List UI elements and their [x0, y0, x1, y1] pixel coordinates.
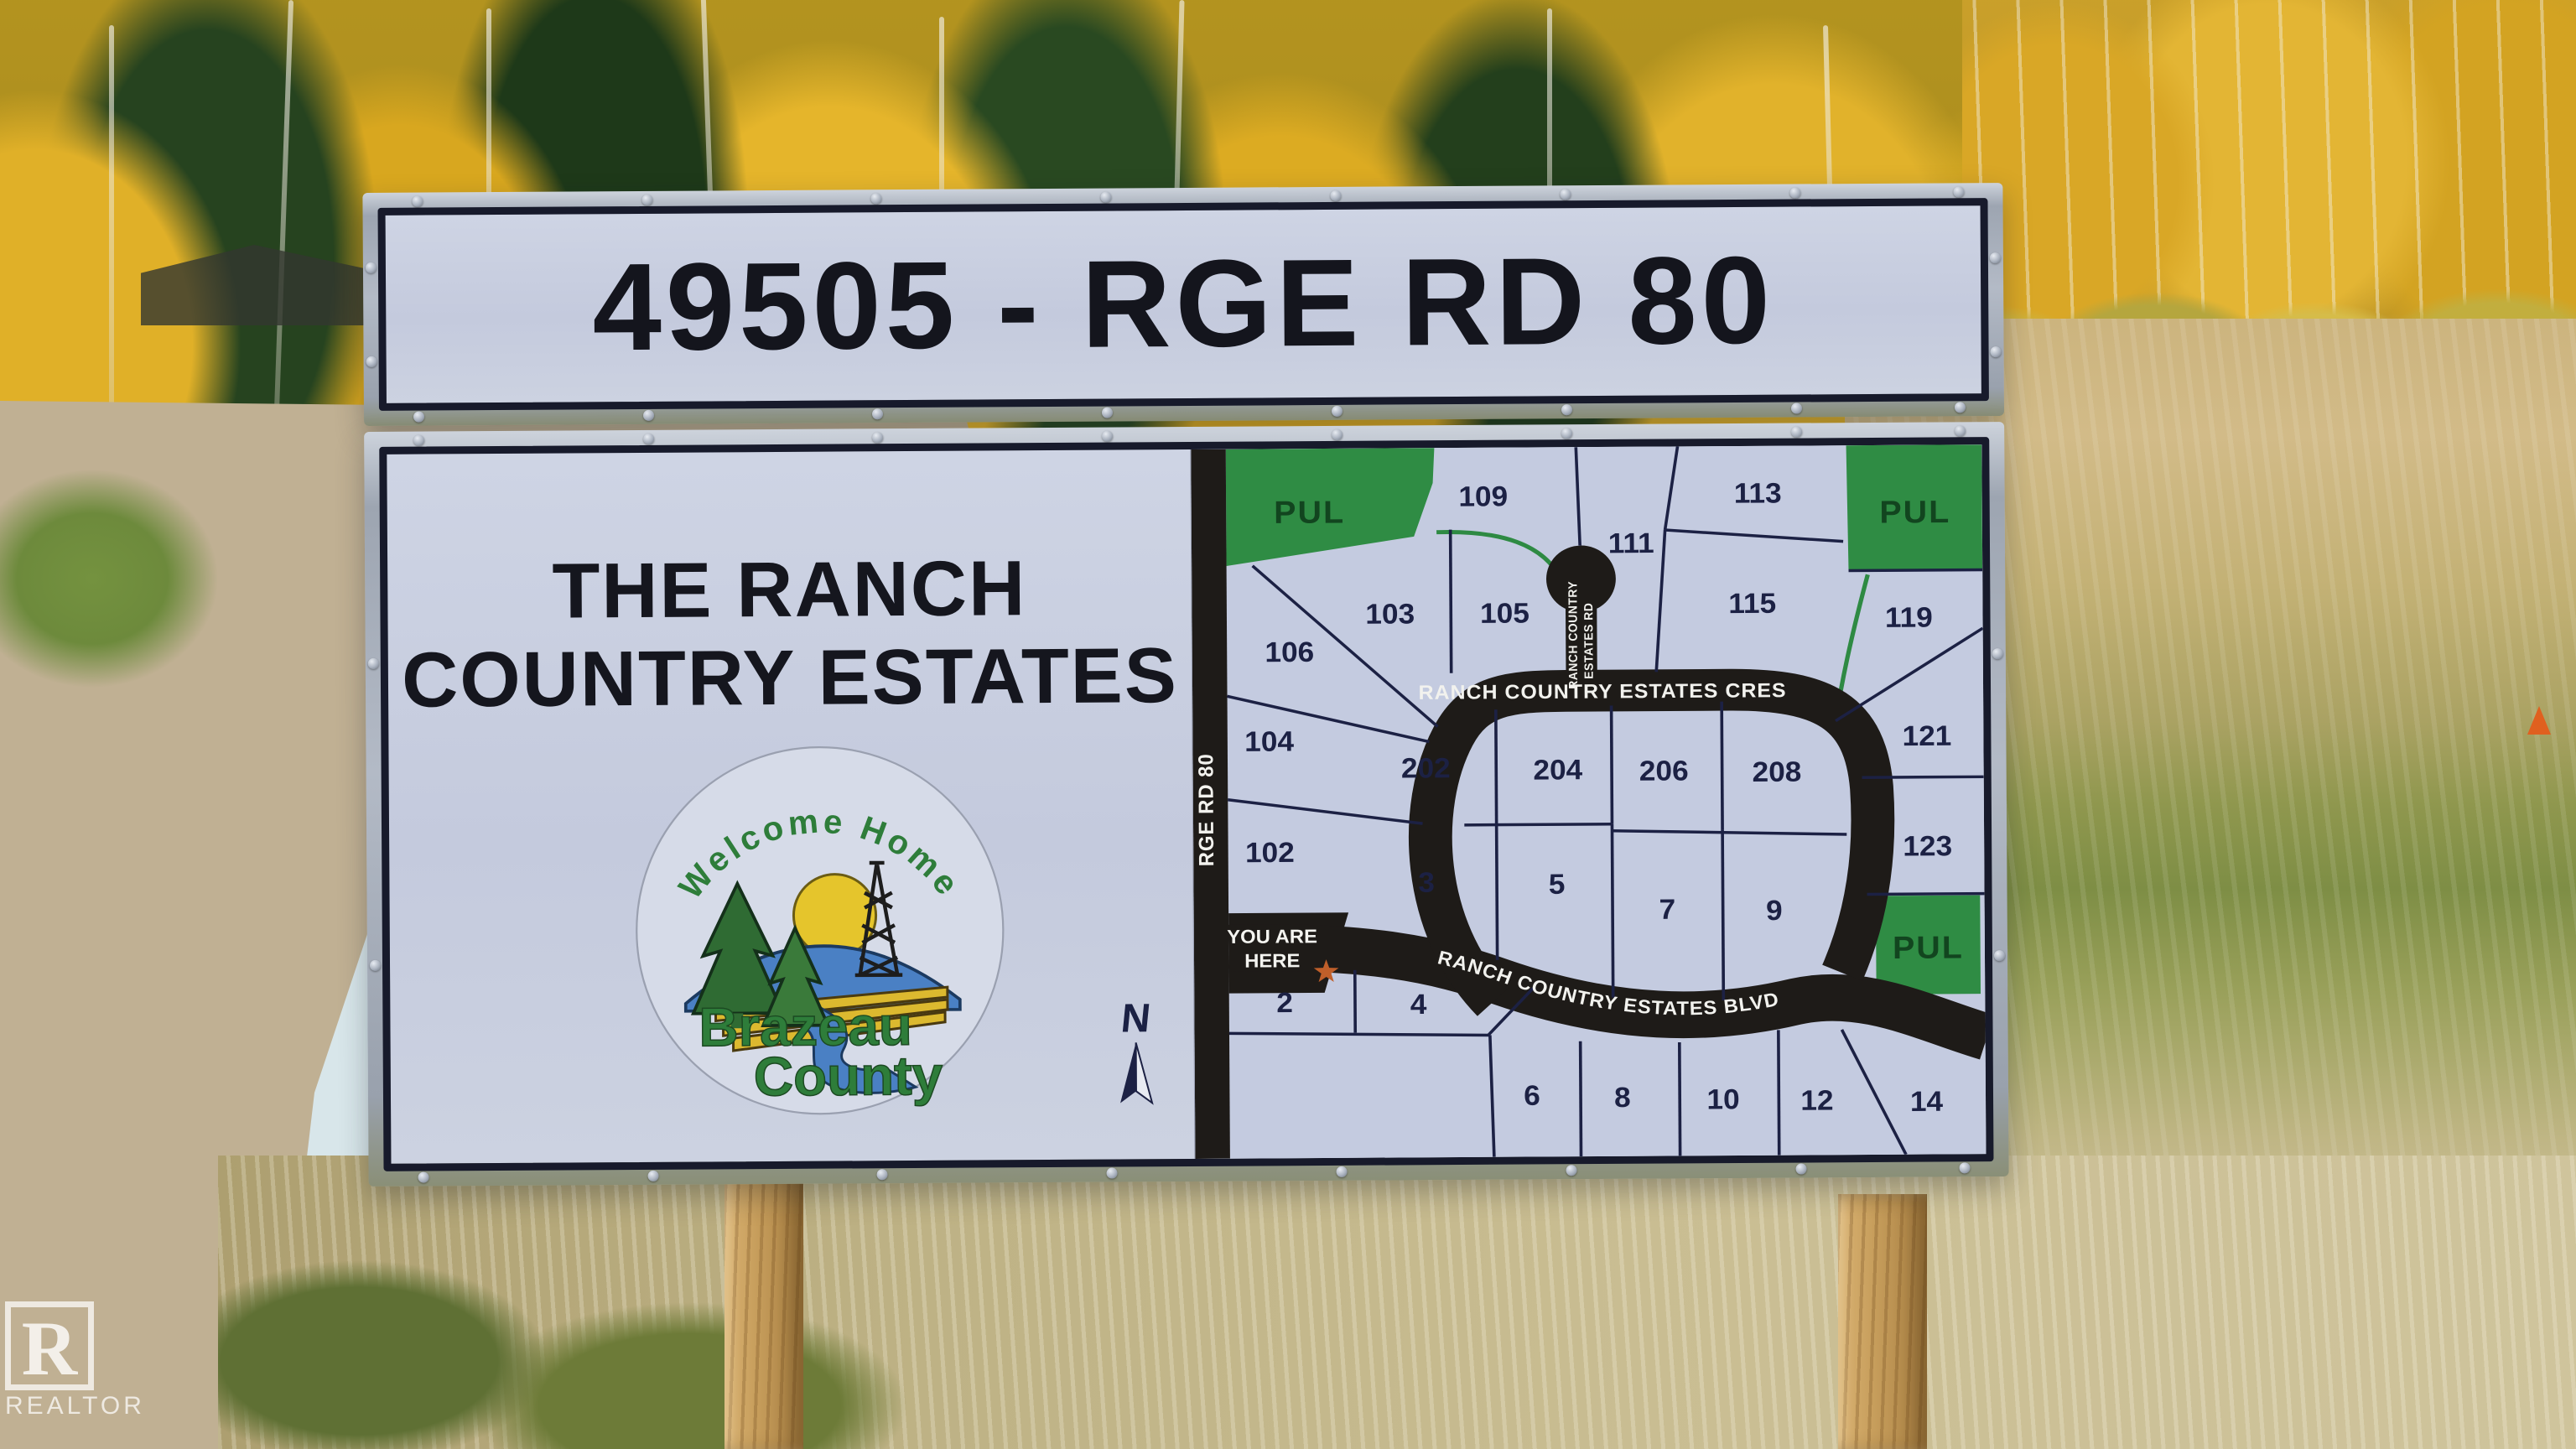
frame-bolt: [1791, 403, 1802, 414]
plat-map: RGE RD 80 RANCH COUNTRY ESTATES CRES RAN…: [1190, 444, 1986, 1159]
lot-number-111: 111: [1608, 528, 1654, 560]
lot-number-103: 103: [1365, 599, 1415, 631]
frame-bolt: [1561, 428, 1572, 439]
road-cul-de-sac: [1546, 545, 1616, 612]
foreground-grass: [218, 1156, 2576, 1449]
lot-number-4: 4: [1410, 989, 1428, 1021]
frame-bolt: [647, 1171, 658, 1182]
lot-number-123: 123: [1903, 831, 1952, 863]
sign-post-right: [1838, 1194, 1927, 1449]
frame-bolt: [1102, 431, 1113, 442]
frame-bolt: [871, 193, 882, 204]
frame-bolt: [641, 195, 652, 205]
info-panel: THE RANCH COUNTRY ESTATES Welcome Home: [387, 449, 1194, 1164]
subdivision-sign: 49505 - RGE RD 80 THE RANCH COUNTRY ESTA…: [362, 183, 2008, 1187]
lot-number-10: 10: [1706, 1084, 1739, 1115]
frame-bolt: [872, 408, 883, 419]
lot-number-206: 206: [1639, 756, 1689, 787]
you-are-here-line2: HERE: [1244, 950, 1300, 972]
pul-label-2: PUL: [1893, 930, 1964, 966]
frame-bolt: [1990, 252, 2001, 263]
frame-bolt: [873, 432, 884, 443]
lot-number-14: 14: [1910, 1086, 1944, 1117]
address-board: 49505 - RGE RD 80: [362, 183, 2004, 426]
frame-bolt: [1566, 1165, 1576, 1176]
frame-bolt: [418, 1172, 428, 1183]
map-panel: THE RANCH COUNTRY ESTATES Welcome Home: [379, 437, 1993, 1171]
frame-bolt: [370, 960, 381, 971]
realtor-logo-r: R: [22, 1313, 77, 1384]
lot-number-204: 204: [1533, 755, 1583, 787]
lot-number-104: 104: [1244, 726, 1295, 758]
north-label: N: [1096, 999, 1176, 1040]
frame-bolt: [1991, 346, 2002, 357]
photo-scene: 49505 - RGE RD 80 THE RANCH COUNTRY ESTA…: [0, 0, 2576, 1449]
north-arrow: N: [1098, 999, 1174, 1111]
birch-trunk: [273, 0, 293, 436]
frame-bolt: [877, 1169, 888, 1180]
frame-bolt: [366, 356, 377, 366]
frame-bolt: [366, 262, 377, 273]
lot-number-106: 106: [1265, 636, 1314, 668]
lot-number-7: 7: [1659, 894, 1676, 925]
realtor-watermark: R REALTOR: [5, 1301, 145, 1420]
subdivision-name-line1: THE RANCH: [387, 543, 1192, 636]
logo-county-line2: County: [754, 1045, 943, 1107]
frame-bolt: [1330, 190, 1341, 201]
realtor-logo-box: R: [5, 1301, 94, 1390]
frame-bolt: [1992, 648, 2003, 659]
frame-bolt: [1332, 406, 1343, 417]
lot-number-6: 6: [1524, 1080, 1540, 1111]
frame-bolt: [643, 434, 654, 444]
lot-number-2: 2: [1276, 988, 1293, 1019]
frame-bolt: [1560, 189, 1571, 200]
lot-number-102: 102: [1245, 837, 1295, 869]
map-board: THE RANCH COUNTRY ESTATES Welcome Home: [364, 422, 2008, 1187]
lot-number-113: 113: [1734, 478, 1782, 510]
frame-bolt: [1795, 1163, 1806, 1174]
label-estates-rd-line2: ESTATES RD: [1582, 603, 1597, 679]
orange-marker-cone: [2527, 706, 2551, 735]
label-rge-rd-80: RGE RD 80: [1195, 753, 1218, 866]
brazeau-county-logo: Welcome Home: [631, 742, 1008, 1119]
frame-bolt: [1101, 192, 1112, 203]
lot-number-119: 119: [1885, 602, 1933, 634]
subdivision-name: THE RANCH COUNTRY ESTATES: [387, 543, 1192, 724]
realtor-logo-text: REALTOR: [5, 1392, 145, 1420]
frame-bolt: [1332, 429, 1343, 440]
frame-bolt: [1107, 1168, 1118, 1179]
frame-bolt: [1954, 186, 1965, 197]
lot-number-202: 202: [1401, 753, 1451, 785]
pul-label-1: PUL: [1879, 495, 1950, 531]
lot-number-115: 115: [1728, 588, 1776, 620]
lot-number-3: 3: [1418, 867, 1435, 898]
lot-number-9: 9: [1766, 896, 1783, 927]
lot-number-12: 12: [1800, 1085, 1833, 1116]
lot-number-5: 5: [1549, 869, 1566, 900]
frame-bolt: [1337, 1166, 1348, 1177]
frame-bolt: [1994, 950, 2005, 961]
frame-bolt: [643, 410, 654, 421]
frame-bolt: [1102, 408, 1113, 418]
frame-bolt: [1561, 404, 1572, 415]
lot-number-121: 121: [1903, 720, 1952, 752]
address-title: 49505 - RGE RD 80: [592, 230, 1774, 380]
lot-number-109: 109: [1458, 481, 1508, 513]
frame-bolt: [413, 435, 424, 446]
frame-bolt: [1955, 402, 1966, 413]
frame-bolt: [1791, 427, 1802, 438]
lot-number-105: 105: [1480, 598, 1529, 630]
frame-bolt: [412, 196, 423, 207]
label-estates-rd-line1: RANCH COUNTRY: [1566, 581, 1581, 689]
pul-label-0: PUL: [1274, 495, 1345, 531]
subdivision-name-line2: COUNTRY ESTATES: [388, 631, 1192, 724]
you-are-here-line1: YOU ARE: [1227, 926, 1317, 948]
frame-bolt: [1955, 425, 1966, 436]
lot-number-208: 208: [1753, 756, 1802, 788]
frame-bolt: [1960, 1162, 1971, 1173]
lot-number-8: 8: [1614, 1083, 1631, 1114]
frame-bolt: [368, 658, 379, 669]
frame-bolt: [1789, 188, 1800, 199]
north-arrow-glyph: [1117, 1041, 1156, 1106]
frame-bolt: [413, 412, 424, 423]
address-panel: 49505 - RGE RD 80: [378, 198, 1989, 411]
sign-post-left: [724, 1171, 803, 1449]
label-cres: RANCH COUNTRY ESTATES CRES: [1419, 680, 1787, 704]
